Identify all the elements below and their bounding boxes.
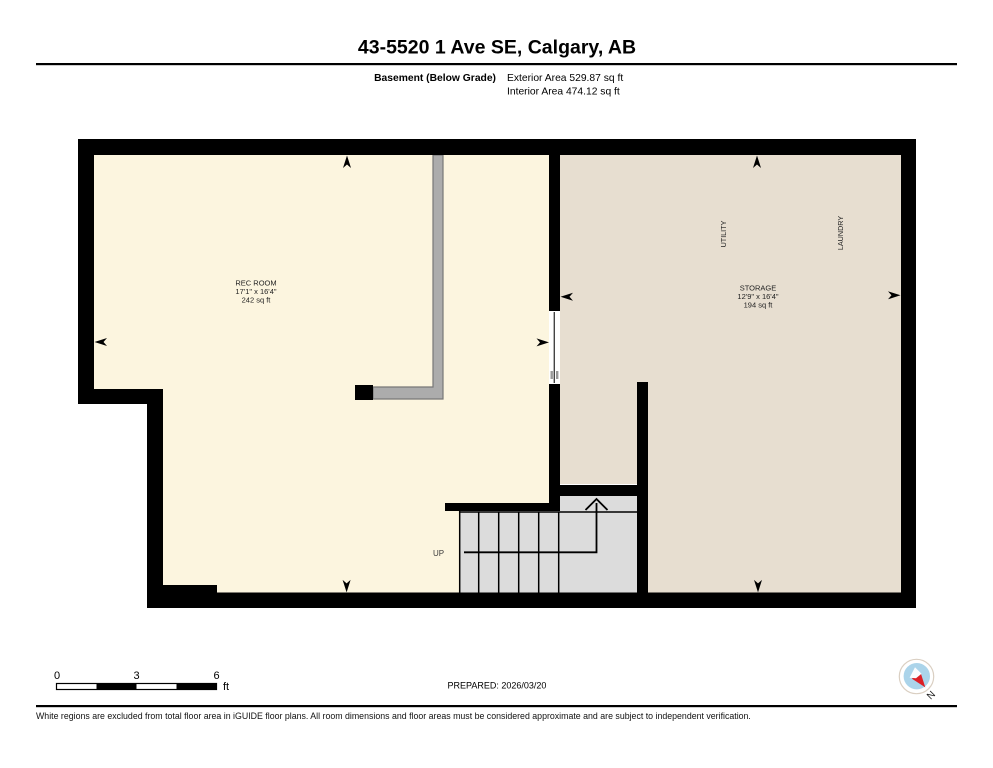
svg-text:242 sq ft: 242 sq ft [242,296,272,305]
svg-text:White regions are excluded fro: White regions are excluded from total fl… [36,711,751,721]
svg-text:Exterior Area 529.87 sq ft: Exterior Area 529.87 sq ft [507,73,623,84]
svg-text:LAUNDRY: LAUNDRY [836,216,845,250]
svg-text:Interior Area 474.12 sq ft: Interior Area 474.12 sq ft [507,87,620,98]
svg-text:UTILITY: UTILITY [719,220,728,247]
svg-text:PREPARED: 2026/03/20: PREPARED: 2026/03/20 [448,681,547,691]
svg-text:ft: ft [223,681,229,693]
svg-text:6: 6 [213,670,219,682]
svg-text:0: 0 [54,670,60,682]
svg-text:UP: UP [433,549,444,558]
svg-text:3: 3 [133,670,139,682]
svg-text:43-5520 1 Ave SE, Calgary, AB: 43-5520 1 Ave SE, Calgary, AB [358,37,636,59]
svg-text:Basement (Below Grade): Basement (Below Grade) [374,73,496,84]
svg-text:194 sq ft: 194 sq ft [744,301,774,310]
